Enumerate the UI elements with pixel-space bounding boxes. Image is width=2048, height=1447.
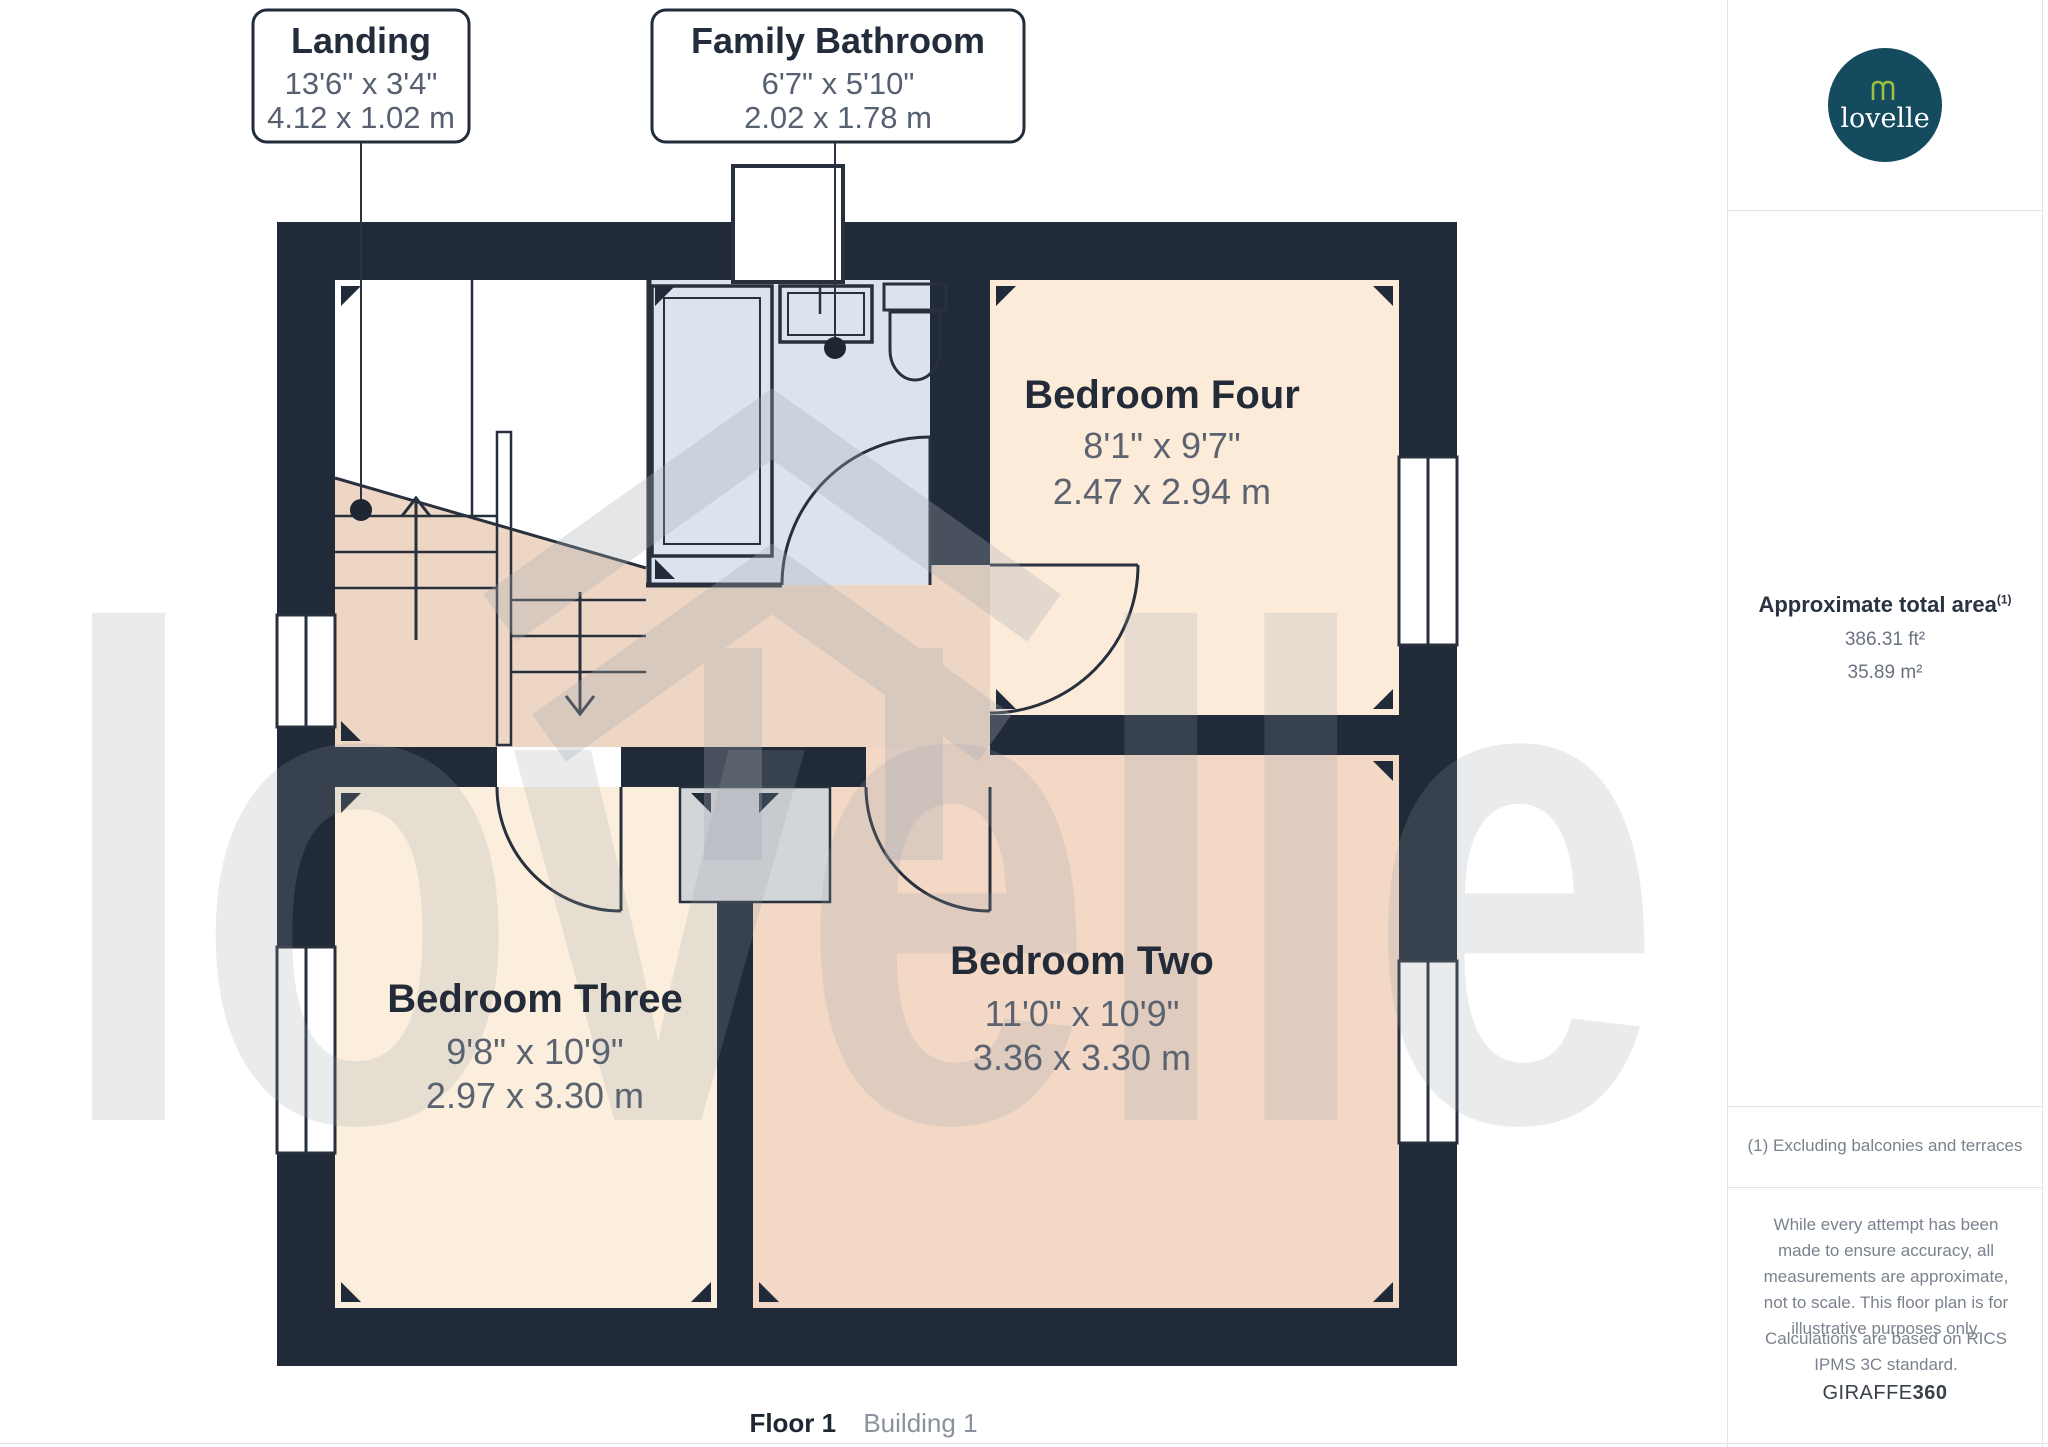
callout-landing-imperial: 13'6" x 3'4" (285, 66, 438, 101)
floorplan-page: lovelle Bedroom Four 8'1" x 9'7" 2.47 x … (0, 0, 2048, 1447)
bedroom-two-name: Bedroom Two (950, 939, 1214, 983)
footnote-excluding: (1) Excluding balconies and terraces (1728, 1136, 2042, 1156)
sidebar-divider-top (1728, 210, 2042, 211)
callout-bathroom-title: Family Bathroom (691, 20, 985, 61)
callout-landing: Landing 13'6" x 3'4" 4.12 x 1.02 m (253, 10, 469, 142)
bedroom-four-metric: 2.47 x 2.94 m (1053, 471, 1271, 512)
callout-family-bathroom: Family Bathroom 6'7" x 5'10" 2.02 x 1.78… (652, 10, 1024, 142)
bedroom-three-name: Bedroom Three (387, 977, 683, 1021)
disclaimer-text: While every attempt has been made to ens… (1752, 1212, 2020, 1342)
chimney-notch (733, 166, 843, 282)
area-footnote-ref: (1) (1997, 593, 2012, 607)
leader-dot-bathroom (824, 337, 846, 359)
callout-landing-metric: 4.12 x 1.02 m (267, 100, 455, 135)
bedroom-three-imperial: 9'8" x 10'9" (446, 1031, 623, 1072)
sidebar-divider-mid (1728, 1106, 2042, 1107)
area-sqft: 386.31 ft² (1728, 629, 2042, 651)
total-area-block: Approximate total area(1) 386.31 ft² 35.… (1728, 592, 2042, 684)
info-sidebar: lovelle Approximate total area(1) 386.31… (1727, 0, 2043, 1447)
bedroom-two-imperial: 11'0" x 10'9" (985, 993, 1180, 1034)
bedroom-four-imperial: 8'1" x 9'7" (1083, 425, 1240, 466)
callout-bathroom-metric: 2.02 x 1.78 m (744, 100, 932, 135)
bottom-divider (0, 1443, 2048, 1444)
area-sqm: 35.89 m² (1728, 662, 2042, 684)
leader-dot-landing (350, 499, 372, 521)
watermark: lovelle (55, 424, 1655, 1269)
floor-label[interactable]: Floor 1 (749, 1408, 836, 1438)
bedroom-three-metric: 2.97 x 3.30 m (426, 1075, 644, 1116)
building-label[interactable]: Building 1 (863, 1408, 977, 1438)
calculations-text: Calculations are based on RICS IPMS 3C s… (1752, 1326, 2020, 1378)
bedroom-two-metric: 3.36 x 3.30 m (973, 1037, 1191, 1078)
callout-landing-title: Landing (291, 20, 431, 61)
callout-bathroom-imperial: 6'7" x 5'10" (762, 66, 915, 101)
lovelle-logo: lovelle (1828, 48, 1942, 162)
sidebar-divider-low (1728, 1187, 2042, 1188)
bedroom-four-name: Bedroom Four (1024, 373, 1300, 417)
watermark-text: lovelle (55, 487, 1655, 1269)
giraffe360-brand: GIRAFFE360 (1728, 1382, 2042, 1405)
floor-selector-bar: Floor 1 Building 1 (0, 1408, 1727, 1439)
lovelle-book-icon (1868, 79, 1902, 101)
area-heading: Approximate total area(1) (1728, 592, 2042, 618)
logo-wordmark: lovelle (1840, 105, 1929, 132)
